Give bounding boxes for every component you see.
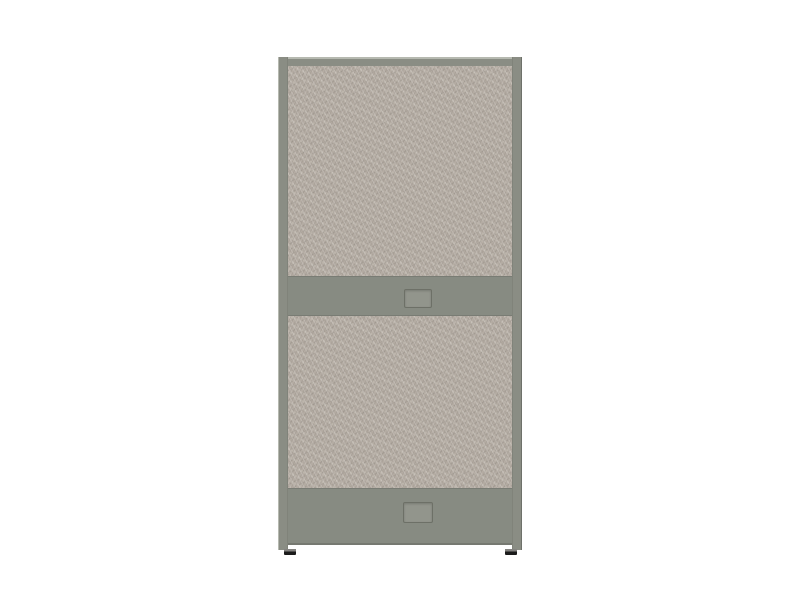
middle-rail — [278, 276, 522, 316]
kick-band — [278, 488, 522, 545]
right-frame-post — [512, 57, 522, 550]
left-frame-post — [278, 57, 288, 550]
cable-grommet-plate-middle — [404, 289, 432, 308]
upper-fabric-panel — [286, 66, 514, 276]
right-glide-foot — [505, 549, 517, 555]
product-render-canvas — [0, 0, 800, 600]
lower-fabric-panel — [286, 316, 514, 488]
office-partition-panel — [278, 57, 522, 550]
top-frame-rail — [278, 57, 522, 66]
cable-grommet-plate-bottom — [403, 502, 433, 523]
left-glide-foot — [284, 549, 296, 555]
